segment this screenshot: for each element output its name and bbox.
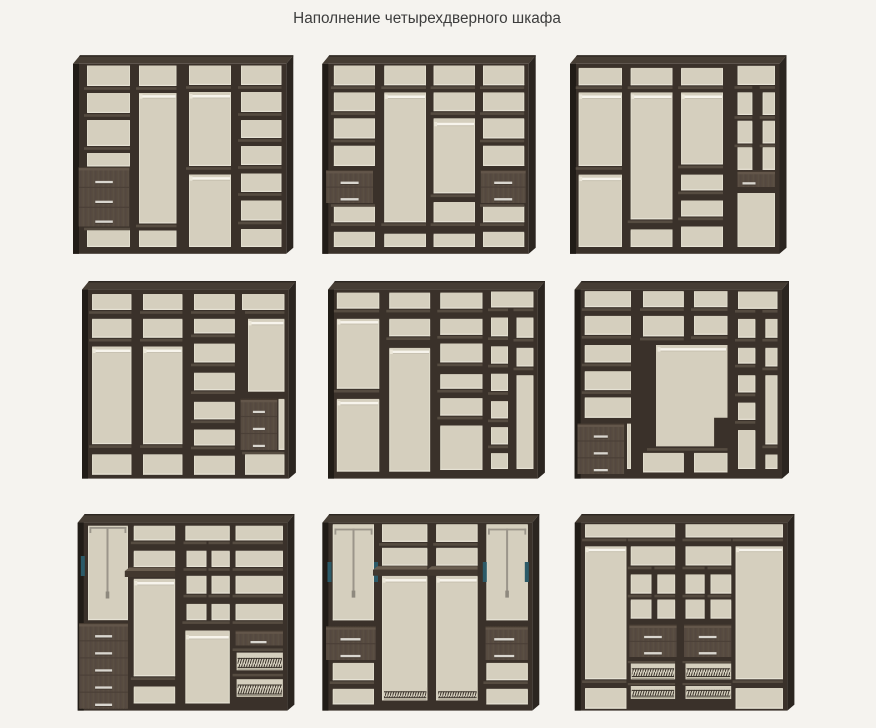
svg-text:Наполнение четырехдверного шка: Наполнение четырехдверного шкафа <box>293 10 561 27</box>
